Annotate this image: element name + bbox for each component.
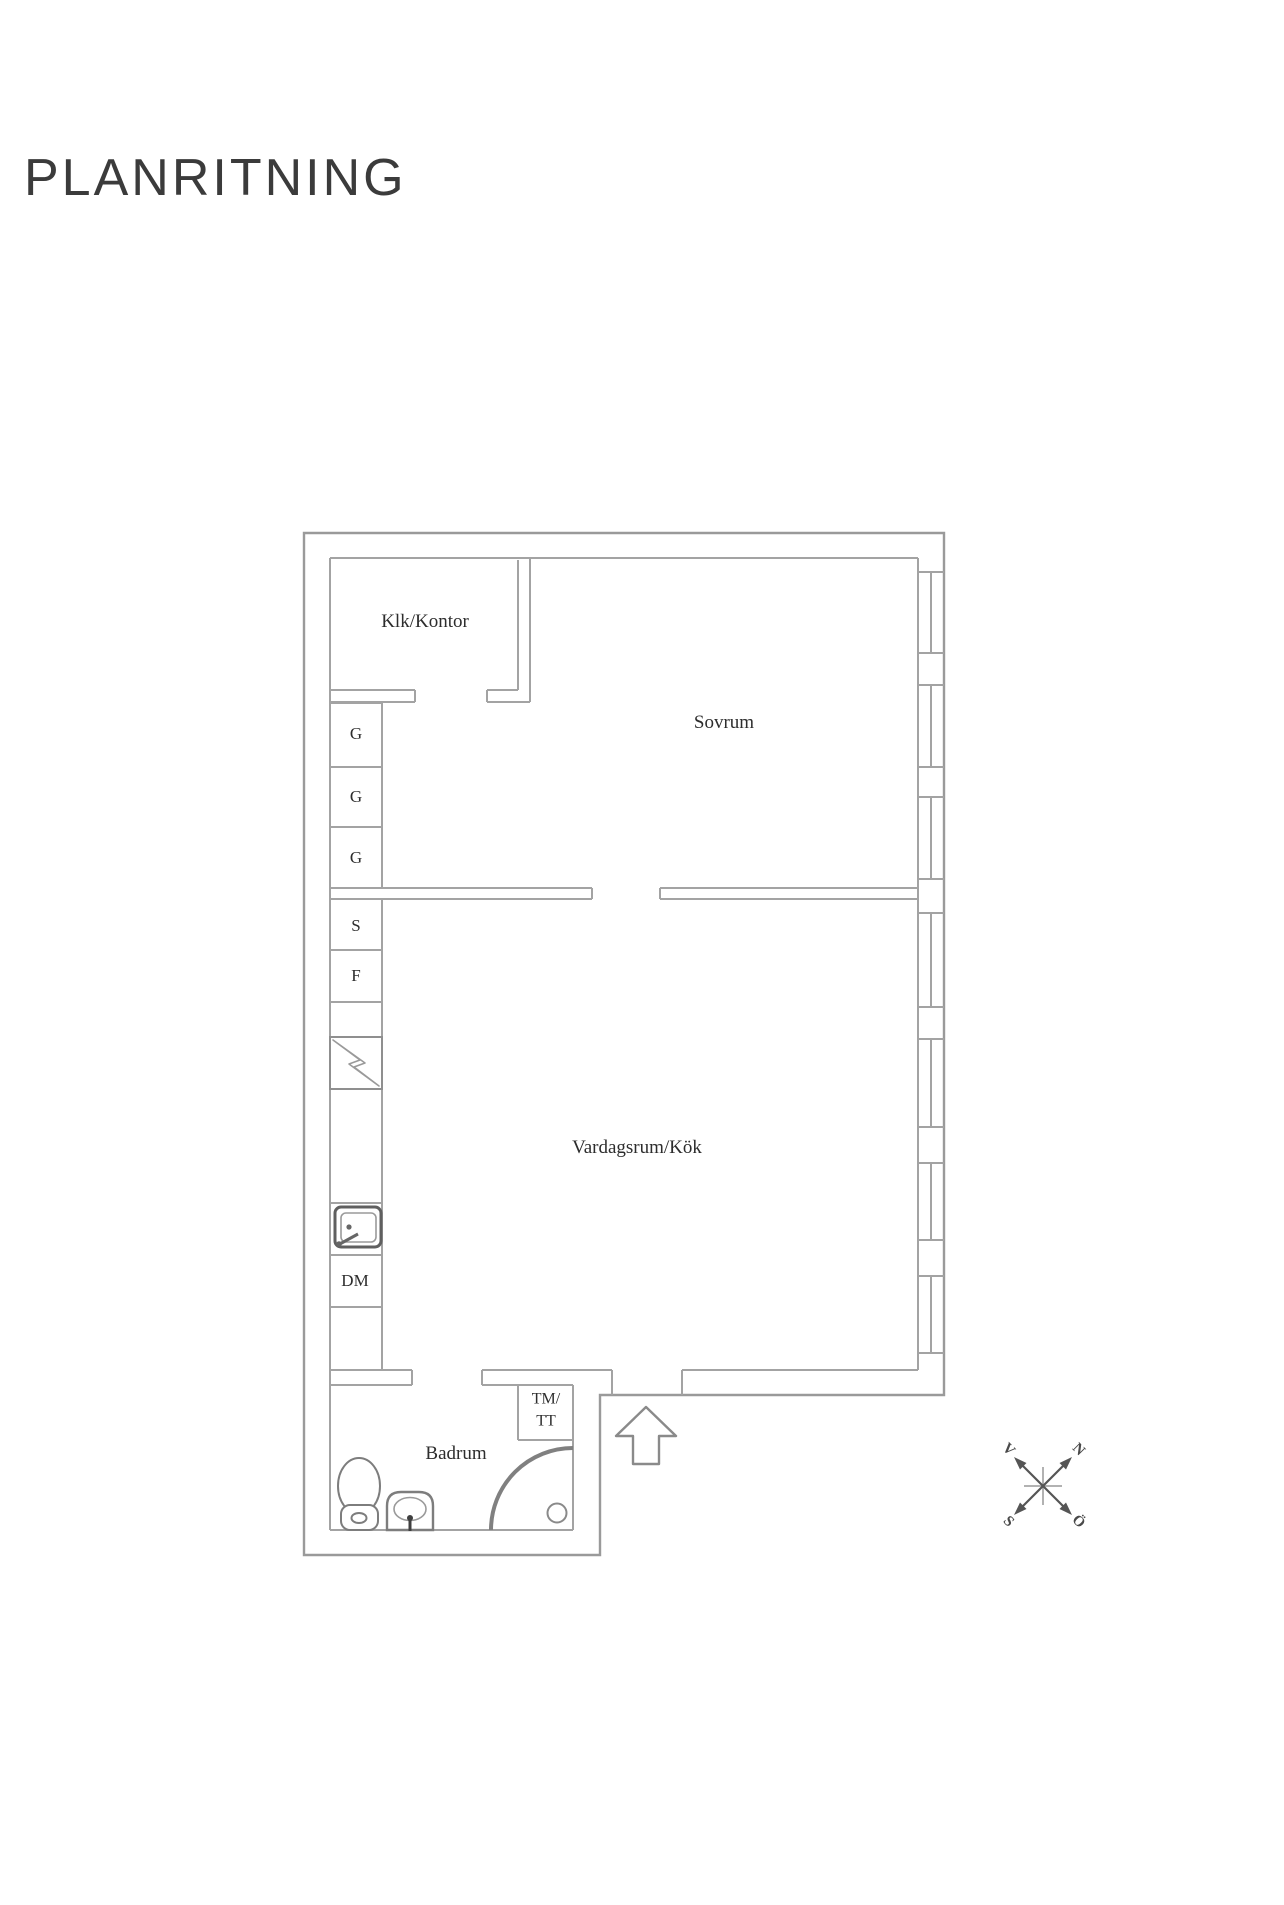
window-icons — [918, 572, 944, 1353]
cabinet-label-dm: DM — [341, 1271, 368, 1291]
entrance-arrow-icon — [616, 1407, 676, 1464]
cabinet-label-g2: G — [350, 787, 362, 807]
room-label-klk-kontor: Klk/Kontor — [381, 611, 469, 633]
stove-icon — [330, 1037, 382, 1089]
compass-icon — [1014, 1457, 1072, 1515]
cabinet-label-f: F — [351, 966, 360, 986]
inner-wall-faces — [330, 558, 918, 1530]
interior-walls — [330, 558, 918, 1440]
shower-door-icon — [491, 1448, 573, 1530]
room-label-sovrum: Sovrum — [694, 712, 754, 734]
cabinet-label-g3: G — [350, 848, 362, 868]
closet-label-tt: TT — [536, 1411, 556, 1432]
cabinet-label-g1: G — [350, 724, 362, 744]
toilet-icon — [338, 1458, 380, 1530]
room-label-badrum: Badrum — [425, 1443, 486, 1465]
washbasin-icon — [387, 1492, 433, 1531]
room-label-vardagsrum: Vardagsrum/Kök — [572, 1137, 702, 1159]
floorplan-drawing — [0, 0, 1284, 1905]
outer-walls — [304, 533, 944, 1555]
floorplan-page: PLANRITNING — [0, 0, 1284, 1905]
cabinet-label-s: S — [351, 916, 360, 936]
closet-label-tm: TM/ — [532, 1389, 560, 1410]
kitchen-sink-icon — [335, 1207, 381, 1247]
